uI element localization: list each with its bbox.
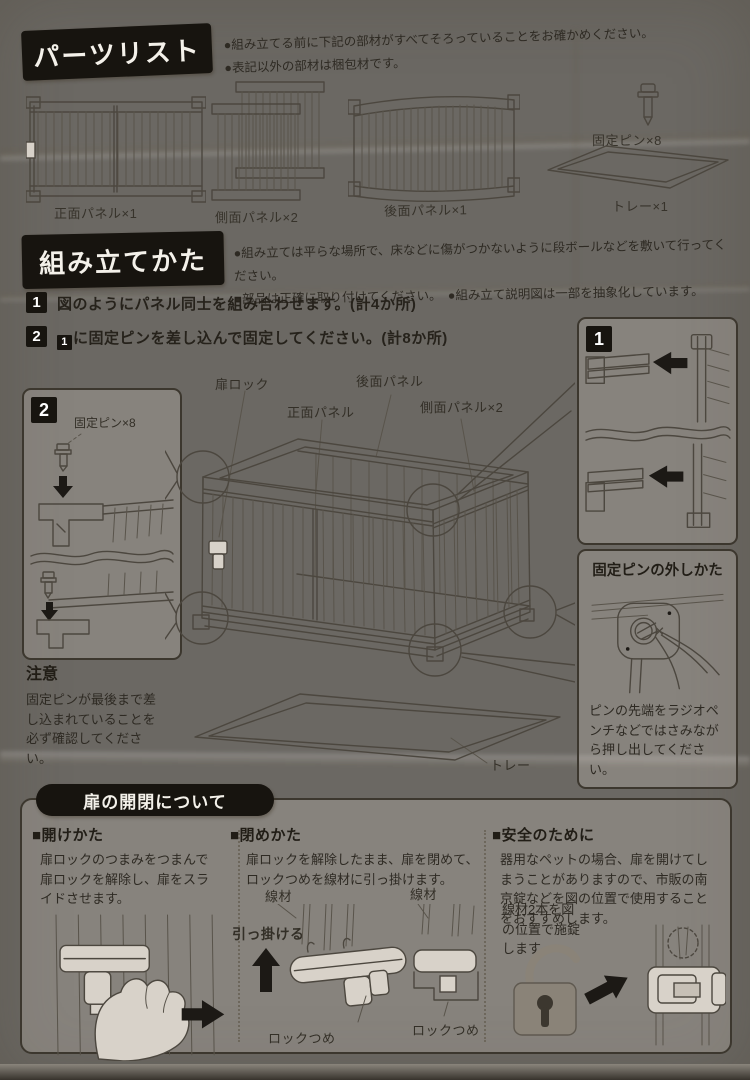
parts-list-notes: ●組み立てる前に下記の部材がすべてそろっていることをお確かめください。 ●表記以…	[223, 20, 739, 81]
open-column: ■開けかた 扉ロックのつまみをつまんで扉ロックを解除し、扉をスライドさせます。	[32, 824, 230, 1061]
close-text: 扉ロックを解除したまま、扉を閉めて、ロックつめを線材に引っ掛けます。	[246, 850, 480, 889]
caution-text: 固定ピンが最後まで差し込まれていることを必ず確認してください。	[26, 690, 160, 768]
open-text: 扉ロックのつまみをつまんで扉ロックを解除し、扉をスライドさせます。	[40, 850, 218, 909]
step1-detail-box: 1	[577, 317, 738, 545]
pin-removal-text: ピンの先端をラジオペンチなどではさみながら押し出してください。	[589, 701, 727, 779]
caution-title: 注意	[26, 660, 166, 684]
part-tray-label: トレー×1	[612, 196, 668, 215]
arrow-down-icon	[41, 602, 58, 621]
back-panel-drawing	[348, 88, 520, 206]
column-divider	[484, 830, 486, 1042]
step-row-1: 1 図のようにパネル同士を組み合わせます。(計4か所)	[26, 292, 566, 314]
photo-bottom-edge	[0, 1064, 750, 1080]
claw-label-1: ロックつめ	[268, 1028, 336, 1047]
pin-removal-drawing	[588, 587, 727, 695]
door-section-header: 扉の開閉について	[36, 784, 274, 816]
step2-pin-label: 固定ピン×8	[74, 414, 136, 431]
arrow-up-right-icon	[581, 966, 634, 1011]
label-back-panel: 後面パネル	[356, 371, 424, 390]
caution-block: 注意 固定ピンが最後まで差し込まれていることを必ず確認してください。	[26, 660, 166, 768]
pin-removal-title: 固定ピンの外しかた	[579, 551, 736, 580]
arrow-left-icon	[649, 465, 683, 487]
step2-ref-badge: 1	[57, 335, 72, 350]
instruction-sheet: パーツリスト ●組み立てる前に下記の部材がすべてそろっていることをお確かめくださ…	[0, 0, 750, 1080]
label-door-lock: 扉ロック	[215, 374, 269, 393]
wire-label-1: 線材	[265, 886, 292, 905]
part-front-label: 正面パネル×1	[54, 203, 137, 222]
pin-removal-box: 固定ピンの外しかた ピンの先端をラジオペンチなどではさみながら押し出してください…	[577, 549, 738, 789]
tray-drawing	[542, 138, 734, 196]
fixing-pin-drawing	[632, 82, 664, 130]
wire-label-2: 線材	[410, 884, 437, 903]
step-row-2: 2 1に固定ピンを差し込んで固定してください。(計8か所)	[26, 326, 566, 350]
padlock-shackle	[529, 948, 576, 983]
cage-assembly-diagram	[165, 365, 575, 795]
open-heading: ■開けかた	[32, 824, 230, 845]
step2-badge: 2	[26, 326, 47, 347]
label-tray: トレー	[490, 755, 531, 774]
label-side-panel: 側面パネル×2	[420, 397, 503, 416]
close-heading: ■閉めかた	[230, 824, 480, 845]
arrow-down-icon	[53, 476, 73, 498]
label-front-panel: 正面パネル	[287, 402, 355, 421]
part-side-label: 側面パネル×2	[215, 207, 298, 226]
safety-column: ■安全のために 器用なペットの場合、扉を開けてしまうことがありますので、市販の南…	[492, 824, 722, 1046]
parts-list-title: パーツリスト	[33, 30, 202, 74]
step2-text: 1に固定ピンを差し込んで固定してください。(計8か所)	[57, 326, 448, 350]
arrow-left-icon	[653, 352, 687, 374]
assembly-header: 組み立てかた	[21, 231, 224, 289]
safety-drawing	[498, 924, 726, 1046]
parts-list-header: パーツリスト	[21, 23, 213, 81]
door-section-title: 扉の開閉について	[83, 788, 227, 813]
step2-detail-box: 2 固定ピン×8	[22, 388, 182, 660]
close-drawing	[248, 904, 480, 1030]
step1-text: 図のようにパネル同士を組み合わせます。(計4か所)	[57, 292, 416, 314]
side-panel-drawing	[210, 80, 328, 206]
open-drawing	[32, 913, 228, 1061]
close-column: ■閉めかた 扉ロックを解除したまま、扉を閉めて、ロックつめを線材に引っ掛けます。…	[246, 824, 480, 1046]
assembly-title: 組み立てかた	[39, 240, 208, 281]
arrow-up-icon	[252, 948, 280, 992]
step1-detail-drawing	[584, 329, 731, 535]
step2-box-badge: 2	[31, 397, 57, 423]
safety-heading: ■安全のために	[492, 824, 722, 845]
step2-detail-drawing	[29, 432, 175, 650]
step1-badge: 1	[26, 292, 47, 313]
step2-text-body: に固定ピンを差し込んで固定してください。(計8か所)	[73, 330, 448, 347]
part-back-label: 後面パネル×1	[384, 199, 468, 219]
front-panel-drawing	[26, 92, 206, 204]
